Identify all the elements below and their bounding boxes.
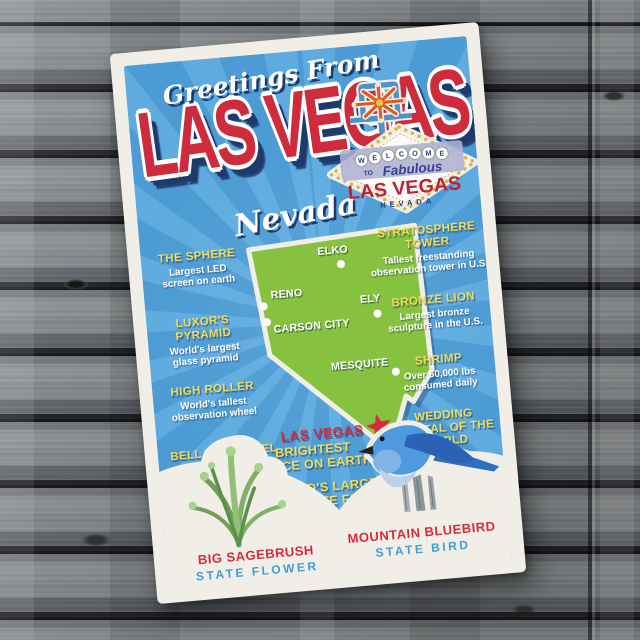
welcome-letter: E	[372, 153, 378, 162]
wood-table-background: Greetings From LAS VEGAS Nevada	[0, 0, 640, 640]
welcome-sign: W E L C O M E TO Fabulous LAS VEGAS NEVA…	[318, 66, 484, 223]
welcome-letter: W	[358, 156, 366, 166]
sign-to-text: TO	[364, 170, 374, 178]
bluebird-illustration	[352, 393, 511, 521]
sagebrush-illustration	[170, 426, 303, 563]
postcard: Greetings From LAS VEGAS Nevada	[110, 22, 527, 604]
fact-the-sphere: THE SPHERE Largest LED screen on earth	[142, 246, 253, 293]
welcome-letter: M	[425, 148, 432, 157]
welcome-letter: C	[398, 149, 404, 158]
fact-stratosphere-tower: STRATOSPHERE TOWER Tallest freestanding …	[367, 219, 489, 280]
fact-luxors-pyramid: LUXOR'S PYRAMID World's largest glass py…	[148, 311, 260, 371]
welcome-letter: E	[439, 149, 445, 158]
postcard-front: Greetings From LAS VEGAS Nevada	[124, 36, 513, 590]
fact-shrimp: SHRIMP Over 60,000 lbs consumed daily	[386, 349, 493, 396]
